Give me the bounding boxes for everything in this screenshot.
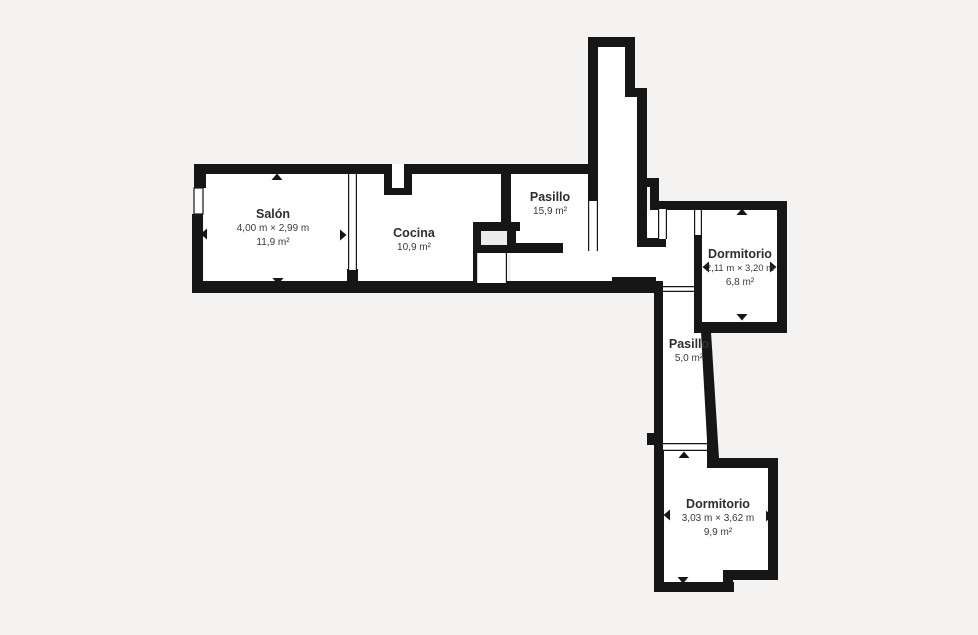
room-dormitorio1-fill (702, 210, 777, 323)
dormitorio2-door-icon (663, 443, 707, 451)
corridor-shaft-lower-fill (598, 88, 638, 246)
wall-niche-fill (392, 164, 404, 189)
room-fills (204, 46, 777, 583)
pasillo2-threshold-icon (663, 286, 694, 292)
floor-plan-canvas: Salón 4,00 m × 2,99 m 11,9 m² Cocina 10,… (0, 0, 978, 635)
room-salon-fill (204, 174, 348, 283)
salon-window-icon (194, 188, 203, 214)
vestibule-door-icon (658, 209, 667, 239)
salon-cocina-partition-icon (348, 174, 357, 270)
vestibule-fill (646, 210, 694, 288)
floor-plan-drawing (0, 0, 978, 635)
room-dormitorio2-fill (663, 450, 769, 583)
closet-door-icon (476, 253, 507, 283)
closet-shaded-cell (481, 231, 507, 245)
dormitorio1-door-icon (694, 210, 702, 235)
pasillo-door-icon (588, 201, 598, 251)
